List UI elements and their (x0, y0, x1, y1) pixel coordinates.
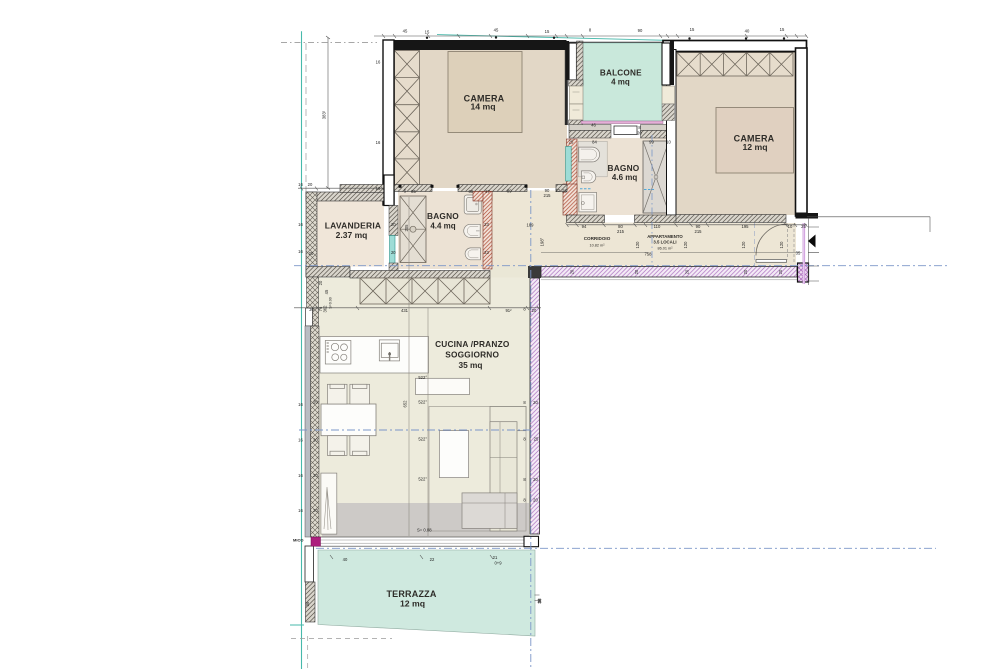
svg-text:20: 20 (308, 182, 313, 187)
svg-text:20: 20 (309, 251, 314, 256)
svg-text:20: 20 (318, 280, 323, 285)
svg-text:20: 20 (391, 222, 396, 227)
svg-text:20: 20 (533, 498, 538, 503)
svg-text:195: 195 (742, 224, 750, 229)
svg-text:84: 84 (592, 140, 597, 145)
svg-text:16: 16 (376, 140, 381, 145)
svg-text:215: 215 (695, 229, 703, 234)
svg-text:16: 16 (298, 182, 303, 187)
svg-text:16: 16 (298, 222, 303, 227)
svg-text:3.5 LOCALI: 3.5 LOCALI (653, 240, 676, 245)
svg-text:20: 20 (743, 269, 748, 274)
svg-text:120: 120 (779, 241, 784, 249)
svg-text:15: 15 (780, 27, 785, 32)
svg-text:10: 10 (666, 140, 671, 145)
svg-text:362: 362 (323, 305, 328, 313)
svg-text:CUCINA /PRANZO: CUCINA /PRANZO (435, 339, 510, 349)
svg-text:120: 120 (635, 241, 640, 249)
svg-text:25: 25 (569, 140, 574, 145)
svg-text:89: 89 (507, 188, 512, 193)
svg-text:LAVANDERIA: LAVANDERIA (325, 221, 381, 231)
svg-text:BALCONE: BALCONE (600, 68, 642, 77)
svg-text:BAGNO: BAGNO (427, 211, 459, 221)
svg-text:S= 0.08: S= 0.08 (417, 528, 432, 533)
svg-text:20: 20 (684, 269, 689, 274)
svg-text:22: 22 (430, 557, 435, 562)
svg-text:15: 15 (425, 30, 430, 35)
svg-text:45: 45 (403, 29, 408, 34)
svg-text:431: 431 (401, 308, 409, 313)
svg-text:APPARTAMENTO: APPARTAMENTO (647, 234, 683, 239)
svg-text:16: 16 (298, 508, 303, 513)
svg-text:4 mq: 4 mq (611, 77, 630, 86)
svg-text:94: 94 (582, 224, 587, 229)
svg-text:2.37 mq: 2.37 mq (336, 230, 368, 240)
svg-text:20: 20 (313, 508, 318, 513)
svg-text:25: 25 (801, 224, 806, 229)
svg-text:215: 215 (617, 229, 625, 234)
svg-text:652: 652 (403, 400, 408, 408)
svg-text:46: 46 (591, 123, 596, 128)
svg-text:90: 90 (638, 28, 643, 33)
svg-text:60: 60 (468, 189, 473, 194)
svg-text:86.01 m²: 86.01 m² (658, 247, 674, 251)
svg-text:35 mq: 35 mq (459, 360, 483, 370)
svg-text:20: 20 (313, 400, 318, 405)
svg-text:27: 27 (485, 189, 490, 194)
svg-text:215: 215 (544, 193, 552, 198)
svg-text:45: 45 (324, 289, 329, 294)
svg-text:21: 21 (493, 555, 498, 560)
svg-text:20: 20 (634, 269, 639, 274)
svg-text:10: 10 (555, 188, 560, 193)
svg-text:16: 16 (298, 438, 303, 443)
svg-text:23: 23 (484, 250, 489, 255)
svg-text:189: 189 (527, 222, 535, 227)
svg-text:BAGNO: BAGNO (608, 163, 640, 173)
svg-text:0+9: 0+9 (494, 561, 502, 566)
svg-text:15: 15 (690, 27, 695, 32)
svg-text:10.82 m²: 10.82 m² (590, 244, 606, 248)
svg-text:4.4 mq: 4.4 mq (430, 221, 455, 230)
svg-text:522°: 522° (418, 375, 427, 380)
svg-text:522°: 522° (418, 477, 427, 482)
svg-text:20: 20 (533, 477, 538, 482)
svg-text:20: 20 (532, 308, 537, 313)
svg-text:20: 20 (313, 438, 318, 443)
svg-text:45: 45 (494, 28, 499, 33)
svg-text:25: 25 (534, 437, 539, 442)
svg-text:4.6 mq: 4.6 mq (612, 173, 637, 182)
svg-text:522°: 522° (418, 400, 427, 405)
svg-text:40: 40 (343, 557, 348, 562)
svg-text:20: 20 (391, 250, 396, 255)
svg-text:110: 110 (654, 224, 661, 229)
svg-text:TERRAZZA: TERRAZZA (386, 589, 436, 599)
svg-text:12 mq: 12 mq (400, 599, 425, 609)
svg-text:23: 23 (484, 222, 489, 227)
svg-text:205: 205 (404, 224, 409, 232)
svg-text:20: 20 (637, 131, 642, 136)
svg-text:198°: 198° (540, 237, 545, 246)
svg-text:15: 15 (545, 29, 550, 34)
svg-text:758: 758 (645, 252, 653, 257)
svg-text:99: 99 (649, 140, 654, 145)
svg-text:16: 16 (376, 186, 381, 191)
svg-text:20: 20 (778, 269, 783, 274)
svg-text:35: 35 (796, 251, 801, 256)
svg-text:20: 20 (533, 400, 538, 405)
svg-text:36: 36 (305, 601, 310, 606)
svg-text:14 mq: 14 mq (470, 101, 495, 111)
svg-text:10: 10 (788, 224, 793, 229)
svg-text:522°: 522° (418, 437, 427, 442)
svg-text:36: 36 (309, 307, 314, 312)
svg-text:16: 16 (298, 249, 303, 254)
svg-text:120: 120 (741, 241, 746, 249)
svg-text:S=0.00: S=0.00 (329, 297, 333, 309)
svg-text:20: 20 (570, 269, 575, 274)
svg-text:12 mq: 12 mq (742, 142, 767, 152)
svg-text:91²: 91² (505, 308, 512, 313)
svg-text:16: 16 (376, 60, 381, 65)
svg-text:25: 25 (562, 189, 567, 194)
svg-text:36: 36 (537, 598, 542, 603)
svg-text:MiCO: MiCO (293, 538, 303, 543)
svg-text:120: 120 (683, 241, 688, 249)
svg-text:383²: 383² (322, 110, 327, 119)
svg-text:85: 85 (411, 189, 416, 194)
svg-text:SOGGIORNO: SOGGIORNO (445, 350, 499, 360)
svg-text:CORRIDOIO: CORRIDOIO (584, 236, 611, 241)
svg-text:16: 16 (298, 402, 303, 407)
svg-text:20: 20 (313, 473, 318, 478)
svg-text:40: 40 (745, 29, 750, 34)
svg-text:16: 16 (298, 473, 303, 478)
